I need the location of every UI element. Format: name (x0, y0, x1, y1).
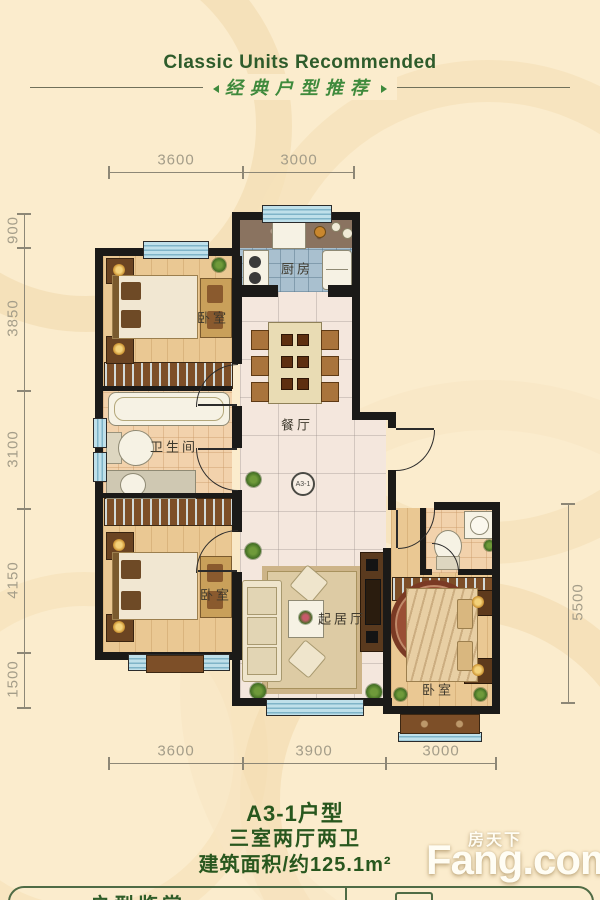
unit-stamp: A3-1 (291, 472, 315, 496)
dining-chair (321, 382, 339, 402)
dim-tick (17, 707, 31, 709)
wall (383, 548, 391, 714)
living-window (266, 699, 364, 716)
dim-top-2: 3000 (280, 152, 317, 169)
wall (492, 502, 500, 714)
room-label-bedroom-2: 卧室 (200, 585, 232, 604)
bathroom-window (93, 418, 107, 448)
dim-top-1: 3600 (157, 152, 194, 169)
wall (232, 490, 242, 532)
wall (232, 256, 242, 364)
bedroom-1-window (143, 241, 209, 259)
cushion (207, 285, 223, 303)
bed (112, 552, 198, 620)
plate-icon (297, 356, 309, 368)
dim-line-top (108, 172, 354, 173)
bed (406, 588, 478, 682)
wall (328, 285, 360, 297)
sink-counter (464, 511, 494, 539)
dim-left-5: 1500 (5, 660, 22, 697)
room-label-bathroom: 卫生间 (150, 437, 198, 456)
dim-tick (108, 757, 110, 770)
dining-chair (251, 382, 269, 402)
sofa-cushion (247, 617, 277, 645)
footer-title: 户型鉴赏 (90, 889, 186, 900)
plate-icon (297, 378, 309, 390)
sink-basin (470, 516, 489, 535)
arrow-left-icon (213, 85, 219, 93)
bench (146, 655, 204, 673)
bathroom-window (93, 452, 107, 482)
wall (103, 493, 232, 498)
tv-cabinet (360, 552, 385, 652)
lamp-icon (472, 664, 484, 676)
dim-tick (242, 757, 244, 770)
speaker-icon (366, 559, 378, 571)
room-label-dining: 餐厅 (281, 415, 313, 434)
wall (388, 412, 396, 428)
bedroom-2-wardrobe (104, 498, 233, 526)
dim-bottom-3: 3000 (422, 743, 459, 760)
dim-tick (385, 757, 387, 770)
room-label-living: 起居厅 (318, 609, 366, 628)
dim-tick (561, 702, 575, 704)
bed (112, 275, 198, 339)
dim-bottom-1: 3600 (157, 743, 194, 760)
plate-icon (281, 378, 293, 390)
header-title-cn: 经典户型推荐 (203, 74, 397, 100)
headboard (113, 553, 119, 619)
dining-chair (321, 330, 339, 350)
plant-icon (246, 472, 261, 487)
plant-icon (250, 683, 266, 699)
wall (232, 406, 242, 448)
lamp-icon (472, 596, 484, 608)
stove (243, 250, 269, 290)
wall (383, 706, 500, 714)
dim-tick (108, 166, 110, 179)
furniture-sketch-icon (395, 892, 433, 900)
page: Classic Units Recommended 经典户型推荐 (0, 0, 600, 900)
dim-bottom-2: 3900 (295, 743, 332, 760)
dim-tick (495, 757, 497, 770)
header-title-en: Classic Units Recommended (0, 52, 600, 74)
lamp-icon (113, 539, 125, 551)
wall (458, 569, 494, 575)
dim-left-1: 900 (5, 216, 22, 244)
plant-icon (474, 688, 487, 701)
dim-left-4: 4150 (5, 561, 22, 598)
pillow (121, 282, 141, 300)
flower-icon (299, 611, 312, 624)
sofa-cushion (247, 587, 277, 615)
plant-icon (394, 688, 407, 701)
plant-icon (245, 543, 261, 559)
toilet-bowl (118, 430, 154, 466)
room-label-bedroom-1: 卧室 (197, 308, 229, 327)
sofa-cushion (247, 647, 277, 675)
wall (352, 212, 360, 420)
dim-tick (17, 508, 31, 510)
plate-icon (297, 334, 309, 346)
arrow-right-icon (381, 85, 387, 93)
dim-tick (242, 166, 244, 179)
wall (388, 502, 396, 510)
dim-tick (353, 166, 355, 179)
room-label-kitchen: 厨房 (281, 259, 313, 278)
dim-line-left (24, 213, 25, 707)
dining-chair (251, 356, 269, 376)
pillow (121, 591, 141, 610)
dim-left-3: 3100 (5, 430, 22, 467)
sofa (242, 580, 282, 682)
dining-chair (251, 330, 269, 350)
kitchen-sink (322, 250, 352, 290)
dim-left-2: 3850 (5, 299, 22, 336)
entry-door-arc (396, 430, 435, 471)
dim-tick (561, 503, 575, 505)
pillow (121, 560, 141, 579)
headboard (113, 276, 119, 338)
dim-tick (17, 390, 31, 392)
header-title-cn-text: 经典户型推荐 (225, 78, 375, 98)
dining-chair (321, 356, 339, 376)
plate-icon (281, 356, 293, 368)
wall (434, 502, 500, 510)
dim-tick (17, 247, 31, 249)
sink-divider (326, 269, 348, 270)
kitchen-cabinet (272, 221, 306, 249)
lamp-icon (113, 343, 125, 355)
dim-line-bottom (108, 763, 495, 764)
bowl-icon (314, 226, 326, 238)
lamp-icon (113, 621, 125, 633)
room-label-bedroom-3: 卧室 (422, 680, 454, 699)
plate-icon (281, 334, 293, 346)
burner-icon (249, 272, 261, 284)
pillow (457, 641, 473, 671)
dim-right-1: 5500 (570, 583, 587, 620)
pillow (121, 310, 141, 328)
bowl-icon (331, 222, 341, 232)
dim-tick (17, 213, 31, 215)
plant-icon (212, 258, 226, 272)
bench (400, 714, 480, 734)
footer-divider (345, 886, 347, 900)
unit-stamp-text: A3-1 (296, 481, 311, 488)
burner-icon (249, 256, 261, 268)
dining-table (268, 322, 322, 404)
floor-plan: A3-1 (0, 0, 600, 900)
pillow (457, 599, 473, 629)
lamp-icon (113, 264, 125, 276)
wall (232, 572, 242, 660)
wall (420, 569, 432, 575)
dim-tick (17, 652, 31, 654)
tv-icon (365, 579, 381, 625)
kitchen-window (262, 205, 332, 223)
watermark-logo-en: Fang.com (426, 836, 600, 884)
speaker-icon (366, 631, 378, 643)
